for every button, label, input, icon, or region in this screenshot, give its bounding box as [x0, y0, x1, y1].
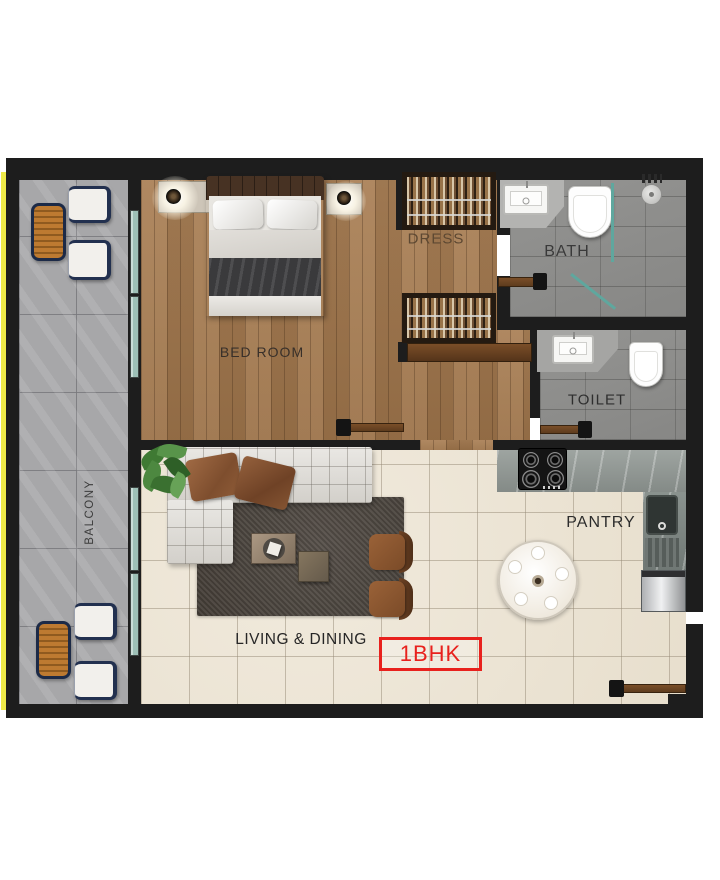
- shower-head-dot: [649, 192, 654, 197]
- wall-right-step: [668, 694, 703, 718]
- table-lamp-right: [337, 191, 351, 205]
- toilet-wc: [629, 342, 663, 387]
- wall-bath-bottom: [497, 317, 686, 330]
- stove-icon: [518, 448, 567, 490]
- wardrobe-rod: [407, 328, 491, 330]
- bath-label: BATH: [544, 243, 589, 261]
- armchair: [369, 531, 413, 573]
- plate-icon: [508, 560, 522, 574]
- wall-corridor-stub: [398, 342, 407, 362]
- plate-icon: [514, 592, 528, 606]
- armchair: [369, 578, 413, 620]
- plate-icon: [531, 546, 545, 560]
- wardrobe-rod: [407, 214, 491, 216]
- bath-door-hinge: [533, 273, 547, 290]
- balcony-chair-bottom-1: [74, 603, 117, 640]
- bath-toilet-seat: [573, 195, 607, 233]
- bedroom-door-hinge: [336, 419, 351, 436]
- bath-sink-drain: [523, 197, 530, 204]
- side-table: [298, 551, 329, 582]
- dining-chair: [525, 506, 558, 540]
- toilet-sink-drain: [570, 347, 577, 354]
- toilet-sink-faucet: [573, 332, 575, 339]
- wall-bottom: [6, 704, 703, 718]
- fridge-icon: [641, 570, 686, 612]
- balcony-table-bottom: [36, 621, 71, 679]
- toilet-door-hinge: [578, 421, 592, 438]
- double-bed: [206, 176, 324, 316]
- fridge-top-band: [642, 571, 685, 577]
- wall-left: [6, 158, 19, 718]
- toilet-wc-seat: [634, 351, 658, 382]
- sofa-chaise: [167, 500, 233, 564]
- plate-icon: [544, 596, 558, 610]
- unit-type-label: 1BHK: [400, 641, 461, 667]
- pantry-label: PANTRY: [566, 514, 635, 532]
- living-dining-label: LIVING & DINING: [235, 631, 367, 649]
- armchair-seat: [369, 534, 405, 570]
- balcony-chair-bottom-2: [74, 661, 117, 700]
- bed-pillow-right: [267, 199, 318, 230]
- coffee-table: [251, 533, 296, 564]
- wardrobe-rod: [407, 199, 491, 201]
- table-centerpiece: [532, 575, 544, 587]
- stove-burner: [547, 452, 563, 468]
- stove-burner: [547, 470, 564, 487]
- entry-door-hinge: [609, 680, 624, 697]
- wall-top: [6, 158, 703, 180]
- wall-right: [686, 158, 703, 612]
- armchair-seat: [369, 581, 405, 617]
- kitchen-drainboard: [645, 538, 679, 567]
- toilet-label: TOILET: [568, 392, 626, 409]
- table-lamp-left: [166, 189, 181, 204]
- bed-pillow-left: [213, 199, 264, 230]
- bath-sink: [503, 184, 549, 215]
- bed-foot-fold: [209, 296, 321, 316]
- balcony-glass-door-living-2: [130, 573, 139, 656]
- wardrobe-top: [402, 172, 496, 230]
- stove-knobs: [543, 486, 563, 489]
- bedroom-label: BED ROOM: [220, 344, 304, 360]
- corridor-console: [407, 343, 532, 362]
- kitchen-sink-drain: [658, 522, 666, 530]
- floor-plan-canvas: BED ROOM DRESS BATH TOILET: [0, 0, 720, 880]
- toilet-sink: [552, 335, 594, 364]
- bed-sheet: [209, 230, 321, 260]
- dining-table: [498, 540, 578, 620]
- balcony-glass-door-bedroom-1: [130, 210, 139, 294]
- wardrobe-rod: [407, 315, 491, 317]
- dress-label: DRESS: [408, 231, 465, 248]
- bath-sink-faucet: [526, 181, 528, 188]
- unit-type-badge: 1BHK: [379, 637, 482, 671]
- balcony-table-top: [31, 203, 66, 261]
- balcony-chair-top-1: [68, 186, 111, 223]
- balcony-chair-top-2: [68, 240, 111, 280]
- shower-partition: [611, 183, 614, 262]
- balcony-label: BALCONY: [84, 479, 96, 544]
- shower-valves-icon: [642, 174, 662, 183]
- stove-burner: [522, 470, 540, 488]
- plate-icon: [555, 567, 569, 581]
- bath-toilet: [568, 186, 612, 238]
- wardrobe-bottom: [402, 293, 496, 343]
- bed-blanket: [209, 258, 321, 298]
- entry-door-leaf: [620, 684, 686, 693]
- stove-burner: [523, 452, 539, 468]
- balcony-glass-door-bedroom-2: [130, 296, 139, 378]
- plant-icon: [136, 442, 192, 504]
